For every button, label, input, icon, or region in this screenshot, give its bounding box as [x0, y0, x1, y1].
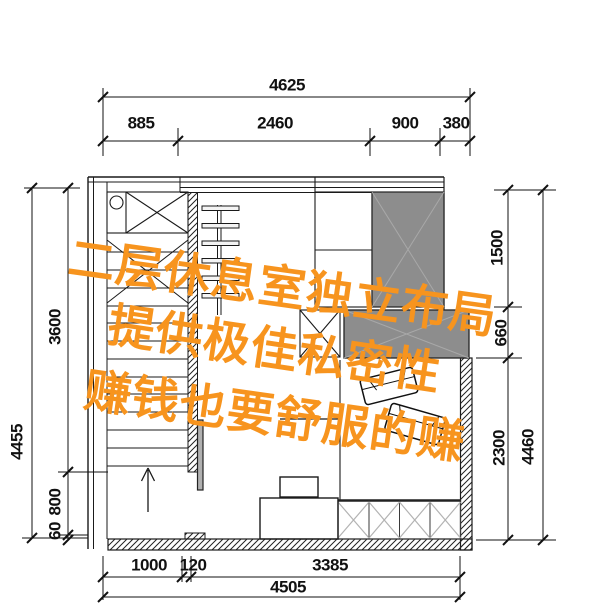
- dim-bottom-total: 4505: [270, 579, 306, 596]
- shaft-box: [107, 192, 188, 233]
- dim-bottom-seg-1: 1000: [131, 557, 167, 574]
- dim-top-seg-2: 2460: [257, 115, 293, 132]
- under-bed-storage: [338, 501, 461, 540]
- bottom-wall: [108, 539, 472, 550]
- dim-left-seg-1: 3600: [47, 309, 64, 345]
- dim-top-total: 4625: [269, 77, 305, 94]
- top-wall: [88, 177, 444, 182]
- desk: [260, 498, 338, 539]
- dim-bottom-seg-2: 120: [180, 557, 207, 574]
- dim-top-seg-3: 900: [392, 115, 419, 132]
- chair: [280, 477, 318, 497]
- dim-left-seg-3: 60: [47, 522, 64, 540]
- dim-top-seg-4: 380: [443, 115, 470, 132]
- window-band: [180, 177, 444, 193]
- dim-left-total: 4455: [9, 424, 26, 460]
- dim-left-seg-2: 800: [47, 489, 64, 516]
- dim-right-total: 4460: [520, 429, 537, 465]
- shaft-circle: [110, 196, 123, 209]
- dim-bottom-seg-3: 3385: [312, 557, 348, 574]
- floor-plan-page: 4625 885 2460 900 380 1000 120 3385 4505…: [0, 0, 600, 616]
- stairs-up-arrow: [142, 468, 155, 512]
- dim-right-seg-1: 1500: [489, 230, 506, 266]
- dim-top-seg-1: 885: [128, 115, 155, 132]
- dim-right-seg-3: 2300: [491, 430, 508, 466]
- wall-bump: [185, 533, 205, 539]
